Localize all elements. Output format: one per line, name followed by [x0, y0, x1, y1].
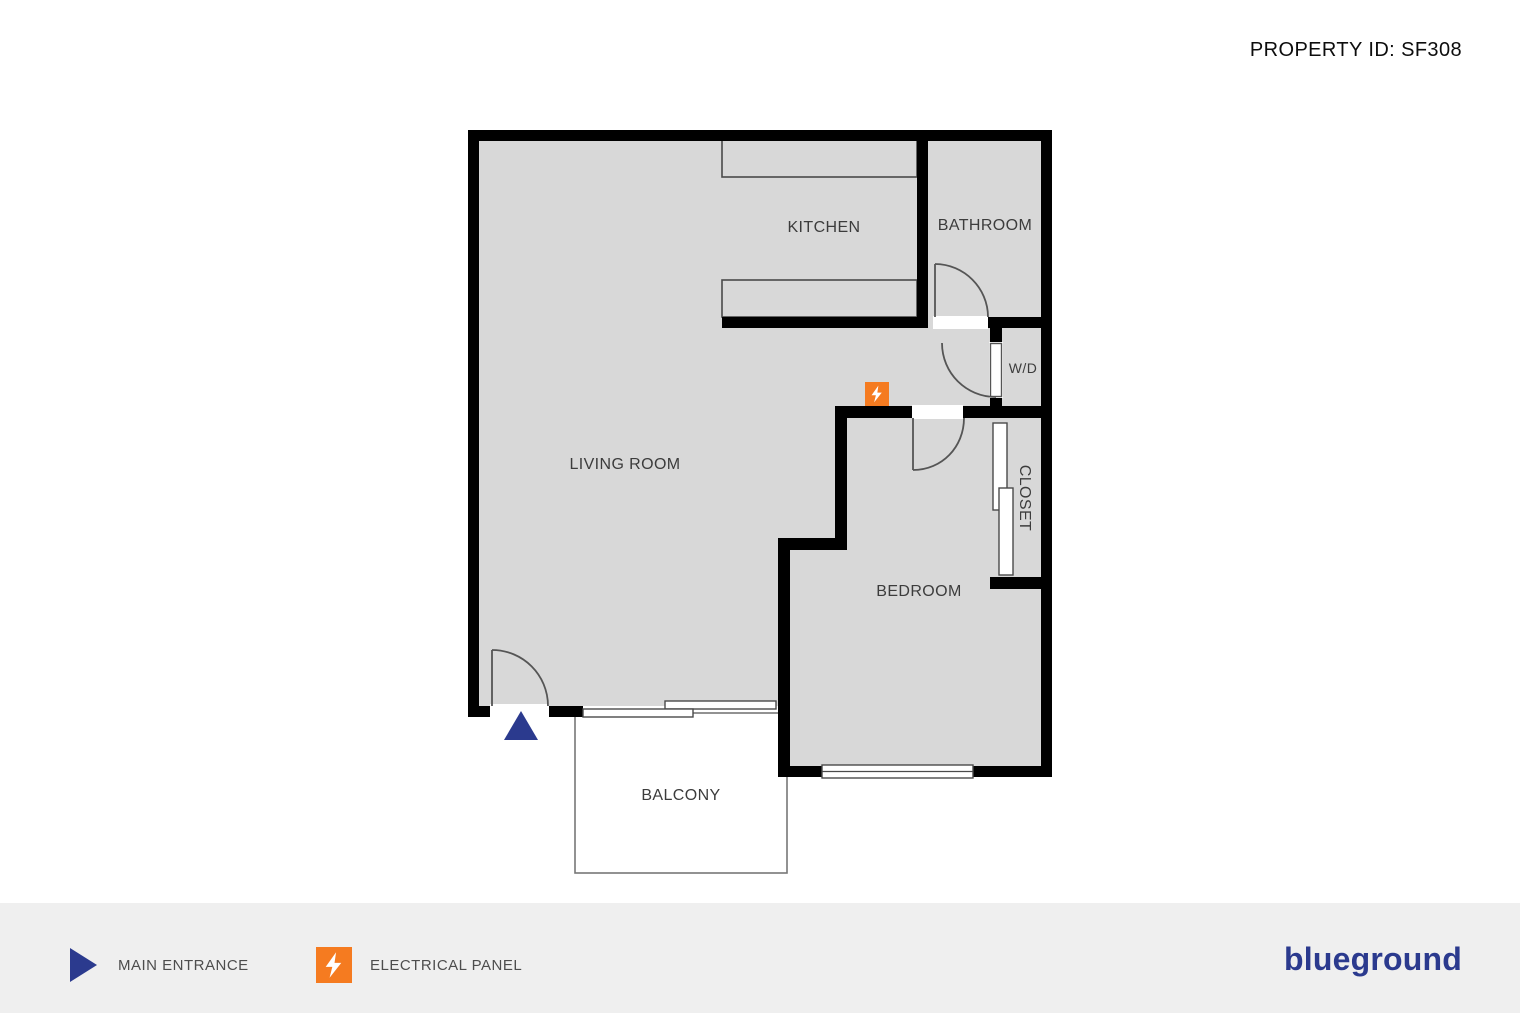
electrical-panel-icon — [316, 947, 352, 983]
brand-logo: blueground — [1284, 941, 1462, 978]
wall-bedroom-upper-left — [835, 406, 847, 550]
room-label-living-room: LIVING ROOM — [569, 456, 680, 474]
page: PROPERTY ID: SF308 — [0, 0, 1520, 1013]
room-label-kitchen: KITCHEN — [787, 219, 860, 237]
wall-top — [468, 130, 1052, 141]
wall-bottom-livingroom-1 — [468, 706, 490, 717]
electrical-panel-icon — [865, 382, 889, 406]
wall-bedroom-left — [778, 538, 790, 777]
legend-label-electrical-panel: ELECTRICAL PANEL — [370, 957, 522, 974]
wall-bottom-livingroom-2 — [549, 706, 583, 717]
room-label-closet: CLOSET — [1015, 465, 1033, 531]
wall-left — [468, 130, 479, 717]
room-label-bathroom: BATHROOM — [938, 217, 1032, 235]
wall-right — [1041, 130, 1052, 777]
wall-kitchen-bathroom-divider — [917, 130, 928, 328]
bedroom-door-opening — [912, 405, 963, 419]
entrance-triangle — [70, 948, 97, 982]
wall-wd-left-lower — [990, 397, 1002, 418]
bedroom-window — [822, 765, 973, 778]
legend-item-main-entrance: MAIN ENTRANCE — [70, 947, 249, 983]
main-entrance-icon — [70, 947, 98, 983]
kitchen-counter-bottom — [722, 280, 917, 317]
wall-wd-left-upper — [990, 317, 1002, 343]
wall-bedroom-top-1 — [835, 406, 912, 418]
wd-door-leaf — [991, 344, 1002, 397]
wall-closet-bottom — [990, 577, 1052, 589]
room-label-bedroom: BEDROOM — [876, 583, 961, 601]
wall-kitchen-bottom — [722, 317, 928, 328]
balcony-sliding-panel-1 — [665, 701, 776, 709]
room-label-wd: W/D — [1009, 360, 1037, 376]
closet-sliding-panel-2 — [999, 488, 1013, 575]
legend-item-electrical-panel: ELECTRICAL PANEL — [316, 947, 522, 983]
room-label-balcony: BALCONY — [641, 787, 720, 805]
floor-plan — [0, 0, 1520, 1013]
balcony-sliding-panel-2 — [583, 709, 693, 717]
wall-bedroom-top-2 — [963, 406, 1052, 418]
bathroom-door-opening — [933, 316, 988, 329]
kitchen-counter-top — [722, 140, 917, 177]
legend-label-main-entrance: MAIN ENTRANCE — [118, 957, 249, 974]
